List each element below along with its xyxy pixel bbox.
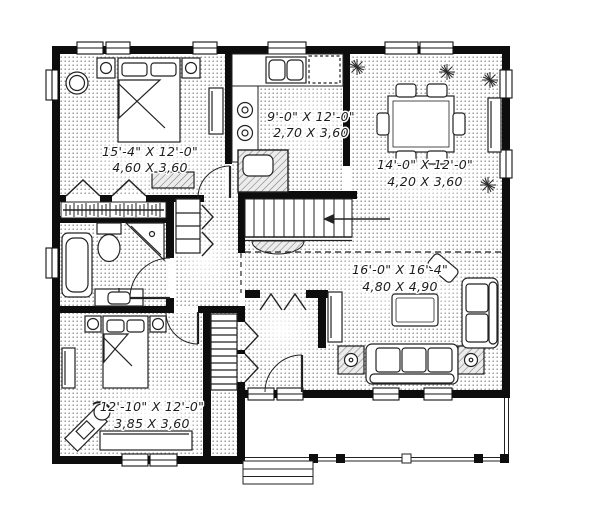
nightstand — [182, 58, 200, 78]
window — [424, 388, 452, 400]
living-dims-imperial: 16'-0" X 16'-4" — [352, 262, 448, 277]
refrigerator — [309, 56, 340, 83]
window — [46, 70, 58, 100]
window — [373, 388, 399, 400]
porch-post — [402, 454, 411, 463]
window — [420, 42, 453, 54]
floor-plan-drawing: 15'-4" X 12'-0" 4,60 X 3,60 9'-0" X 12'-… — [0, 0, 600, 530]
sofa — [366, 344, 458, 384]
wardrobe-closet — [61, 202, 166, 218]
wall-right — [502, 46, 510, 398]
bedroom2-dims-metric: 3,85 X 3,60 — [114, 416, 189, 431]
dining-chair — [377, 113, 389, 135]
bedroom2-dims-imperial: 12'-10" X 12'-0" — [100, 399, 204, 414]
dining-chair — [453, 113, 465, 135]
buffet — [488, 98, 501, 152]
dining-chair — [427, 84, 447, 97]
dining-dims-imperial: 14'-0" X 12'-0" — [377, 157, 473, 172]
dresser — [209, 88, 223, 134]
window — [500, 70, 512, 98]
double-bed — [118, 58, 180, 142]
window — [277, 388, 303, 400]
bedroom1-dims-metric: 4,60 X 3,60 — [112, 160, 187, 175]
linen-closet — [176, 199, 200, 253]
dining-dims-metric: 4,20 X 3,60 — [387, 174, 462, 189]
wall-step-connector — [237, 390, 245, 464]
dining-table — [388, 96, 454, 152]
window — [77, 42, 103, 54]
kitchen-dims-imperial: 9'-0" X 12'-0" — [267, 109, 355, 124]
round-table — [66, 72, 88, 94]
window — [268, 42, 306, 54]
window — [106, 42, 130, 54]
low-dresser — [100, 431, 192, 450]
window — [193, 42, 217, 54]
wall-stair-west — [238, 191, 245, 253]
single-bed — [103, 316, 148, 388]
coffee-table — [392, 294, 438, 326]
bathtub — [62, 233, 92, 297]
window — [150, 454, 177, 466]
loveseat — [462, 278, 498, 348]
toilet — [97, 223, 121, 262]
porch — [243, 398, 509, 484]
kitchen-dims-metric: 2,70 X 3,60 — [273, 125, 348, 140]
window — [122, 454, 148, 466]
wall-bedroom1-kitchen — [225, 52, 232, 164]
end-table-lamp — [338, 346, 364, 374]
wall-kitchen-dining — [343, 46, 350, 166]
bedroom1-dims-imperial: 15'-4" X 12'-0" — [102, 144, 198, 159]
window — [248, 388, 274, 400]
pantry-basement-landing — [238, 150, 288, 192]
nightstand — [97, 58, 115, 78]
living-dims-metric: 4,80 X 4,90 — [362, 279, 437, 294]
dresser — [62, 348, 75, 388]
foyer-closet-shelves — [211, 314, 237, 390]
dining-chair — [396, 84, 416, 97]
nightstand — [150, 316, 166, 332]
nightstand — [85, 316, 101, 332]
end-table-lamp — [458, 346, 484, 374]
tv-unit — [328, 292, 342, 342]
window — [46, 248, 58, 278]
kitchen-sink — [266, 57, 306, 83]
window — [500, 150, 512, 178]
porch-steps — [243, 461, 313, 484]
floor-plan-page: 15'-4" X 12'-0" 4,60 X 3,60 9'-0" X 12'-… — [0, 0, 600, 530]
window — [385, 42, 418, 54]
wall-foyer-east — [318, 290, 326, 348]
